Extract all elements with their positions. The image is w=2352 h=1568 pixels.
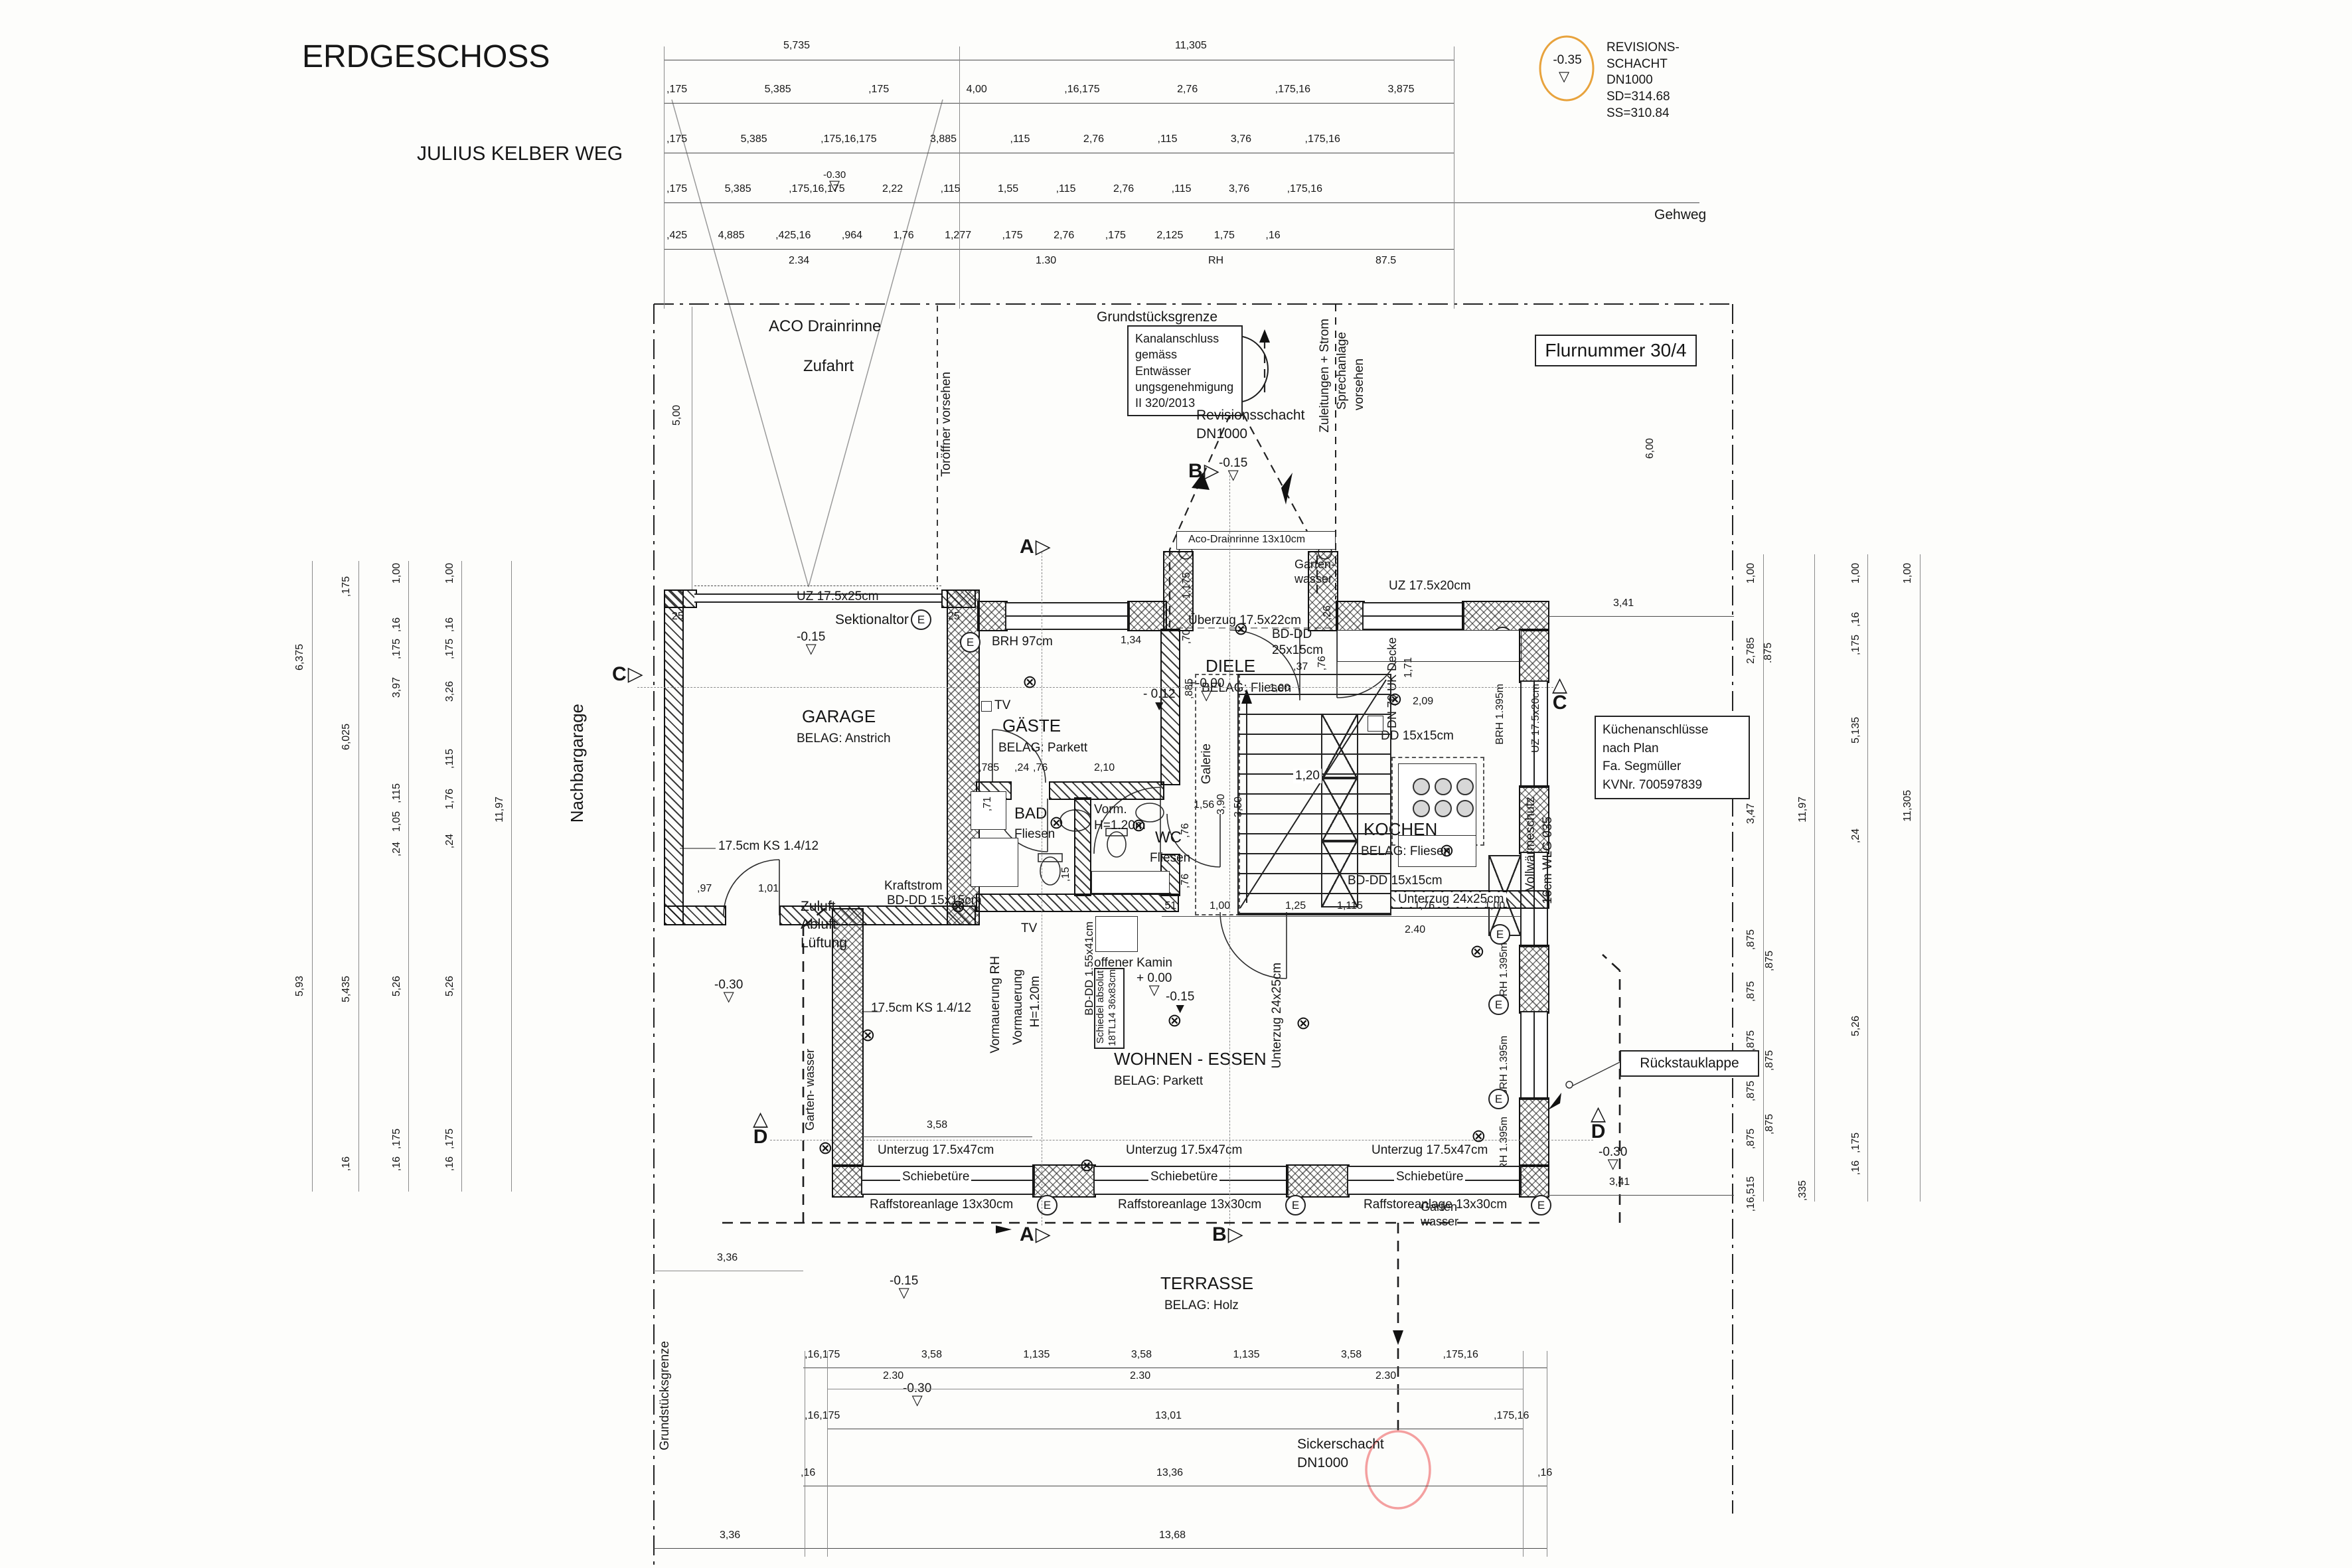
dim-label: 5,135: [1851, 717, 1862, 744]
house-wall-north: [977, 601, 1008, 631]
dim-ext-line: [1523, 1351, 1524, 1557]
room-belag-wohnen: BELAG: Parkett: [1114, 1074, 1203, 1089]
dim-label: ,76: [1317, 656, 1328, 670]
dim-label: 2.34: [789, 255, 809, 267]
dim-row: ,175 5,385 ,175,16,175 3,885 ,115 2,76 ,…: [666, 133, 1340, 145]
lamp-icon: ⊗: [1439, 842, 1454, 860]
dim-label: 1,20: [1293, 769, 1322, 783]
window-east: [1520, 1011, 1548, 1100]
dim-label: ,16,175: [805, 1410, 840, 1422]
dim-line: [654, 1271, 803, 1271]
dim-label: 3,36: [720, 1529, 740, 1541]
dim-label: 2.40: [1405, 924, 1425, 937]
dim-label: 11,97: [495, 797, 506, 823]
section-letter: B: [1212, 1223, 1227, 1246]
dim-line-v: [358, 561, 359, 1192]
e-circle: E: [911, 609, 931, 630]
section-marker-b-bottom: B ▷: [1212, 1223, 1243, 1246]
dim-label: 3,90: [1216, 794, 1227, 815]
vormauerung-rh-label: Vormauerung RH: [989, 956, 1002, 1054]
flurnummer-box: Flurnummer 30/4: [1535, 335, 1697, 366]
dim-label: 3,47: [1746, 803, 1757, 824]
dim-label: 1,76: [1414, 900, 1435, 913]
lamp-icon: ⊗: [1387, 690, 1403, 708]
dim-label: ,16: [392, 617, 403, 632]
lamp-icon: ⊗: [1022, 673, 1038, 691]
dim-label: 11,97: [1798, 797, 1809, 823]
house-wall-east: [1519, 629, 1549, 683]
dim-label: 5,26: [445, 976, 456, 996]
section-letter: C: [612, 663, 627, 686]
dim-line-v: [461, 561, 462, 1192]
vollwaermeschutz-label-1: Vollwärmeschutz: [1524, 797, 1537, 892]
gehweg-label: Gehweg: [1654, 207, 1706, 224]
dim-ext-line: [1547, 1351, 1547, 1557]
dim-label: ,70: [1182, 629, 1193, 644]
dim-ext-line: [805, 1351, 805, 1557]
zuleitungen-label-3: vorsehen: [1353, 358, 1366, 410]
garage-wall-west: [664, 589, 684, 925]
dim-ext-line: [692, 307, 692, 589]
dim-label: 1,00: [1746, 563, 1757, 584]
ks-wall-note: 17.5cm KS 1.4/12: [871, 1001, 971, 1016]
dim-label: 3,41: [1609, 1176, 1630, 1189]
nachbargarage-label: Nachbargarage: [568, 704, 586, 823]
zuleitungen-label-2: Sprechanlage: [1336, 332, 1349, 410]
e-circle: E: [1488, 994, 1509, 1015]
dim-label: ,875: [1764, 1050, 1776, 1071]
section-marker-c-right: △ C: [1552, 676, 1567, 712]
schiedel-label-1: Schiedel absolut: [1095, 971, 1106, 1044]
unterzug-17547-label: Unterzug 17.5x47cm: [878, 1143, 994, 1158]
dim-line: [803, 1368, 1547, 1368]
dim-label: 25: [948, 611, 960, 623]
section-letter: A: [1020, 536, 1034, 558]
wall-badwc-south: [976, 894, 1179, 912]
lamp-icon: ⊗: [818, 1139, 833, 1157]
shower-tray: [971, 838, 1018, 887]
dim-row: ,175 5,385 ,175 4,00 ,16,175 2,76 ,175,1…: [666, 84, 1415, 96]
brh-label: BRH 1.395m: [1495, 684, 1506, 745]
dim-label: 3,97: [392, 677, 403, 698]
section-marker-d-left: △ D: [753, 1110, 768, 1146]
dim-label: 3,41: [1613, 597, 1634, 610]
level-triangle-icon: ▽: [1608, 1157, 1618, 1171]
room-belag-wc: Fliesen: [1150, 851, 1190, 866]
level-marker: -0.15 ▽: [890, 1275, 918, 1300]
dim-label: 6,00: [1645, 438, 1656, 459]
section-letter: C: [1553, 694, 1567, 712]
lamp-icon: ⊗: [860, 1026, 876, 1044]
room-belag-garage: BELAG: Anstrich: [797, 732, 891, 746]
level-marker: -0.15 ▽: [1219, 457, 1247, 482]
raffstore-label: Raffstoreanlage 13x30cm: [870, 1198, 1013, 1212]
dim-label: 1,34: [1121, 635, 1141, 647]
dim-label: 1,175: [1182, 572, 1193, 599]
schiebetuere-label: Schiebetüre: [1148, 1170, 1219, 1184]
kuechenanschluesse-box: Küchenanschlüsse nach Plan Fa. Segmüller…: [1595, 716, 1750, 799]
house-wall-south-pier: [1286, 1164, 1350, 1198]
dim-label: 1,25: [1285, 900, 1306, 913]
level-marker: -0.15 ▽: [797, 631, 825, 656]
revisionsschacht-label: Revisionsschacht DN1000: [1196, 406, 1304, 444]
dim-label: ,175: [392, 639, 403, 659]
e-letter: E: [1537, 1199, 1545, 1212]
room-belag-terrasse: BELAG: Holz: [1164, 1298, 1239, 1313]
section-marker-c-left: C ▷: [612, 663, 643, 686]
dim-label: 11,305: [1903, 790, 1914, 822]
section-marker-a-bottom: A ▷: [1020, 1223, 1051, 1246]
staircase: [1237, 674, 1391, 915]
unterzug-17547-label: Unterzug 17.5x47cm: [1126, 1143, 1242, 1158]
lamp-icon: ⊗: [1131, 817, 1146, 834]
level-triangle-icon: ▽: [829, 179, 840, 193]
dim-line-v: [312, 561, 313, 1192]
dim-line: [664, 60, 1454, 60]
garage-wall-south: [664, 905, 726, 925]
level-triangle-icon: ▽: [912, 1393, 923, 1407]
window-gaeste-north: [1005, 602, 1130, 630]
e-letter: E: [1044, 1199, 1051, 1212]
vormauerung-h-label-1: Vormauerung: [1012, 969, 1025, 1045]
lamp-icon: ⊗: [951, 898, 966, 915]
dim-line-v: [1920, 554, 1921, 1202]
aco-drainrinne-label: ACO Drainrinne: [769, 317, 881, 336]
hob-burners: [1413, 778, 1474, 817]
dim-label: ,175,16: [1494, 1410, 1529, 1422]
dim-label: 5,735: [783, 40, 810, 52]
boundary-label: Grundstücksgrenze: [1097, 309, 1217, 326]
section-triangle-icon: △: [1591, 1105, 1606, 1123]
dim-label: 2,09: [1413, 696, 1433, 708]
dim-label: 11,305: [1175, 40, 1207, 52]
dim-label: ,875: [1746, 1030, 1757, 1051]
e-circle: E: [1037, 1195, 1058, 1215]
e-circle: E: [1531, 1195, 1551, 1215]
dim-label: ,16: [445, 1156, 456, 1171]
dim-row: ,175 5,385 ,175,16,175 2,22 ,115 1,55 ,1…: [666, 183, 1322, 195]
section-marker-a-top: A ▷: [1020, 535, 1051, 558]
wall-gaeste-diele: [1160, 629, 1180, 785]
wall-gaeste-south: [1049, 781, 1164, 800]
house-wall-south-corner: [832, 1164, 864, 1198]
sickerschacht-label: Sickerschacht DN1000: [1297, 1435, 1384, 1473]
e-letter: E: [1292, 1199, 1299, 1212]
revision-note: REVISIONS- SCHACHT DN1000 SD=314.68 SS=3…: [1607, 40, 1680, 121]
section-letter: B: [1188, 460, 1203, 483]
e-letter: E: [917, 613, 925, 627]
section-triangle-icon: ▷: [1204, 459, 1219, 483]
wc-appliance-counter: [1091, 871, 1170, 894]
section-marker-b-top: B ▷: [1188, 459, 1219, 483]
dim-label: ,175: [392, 1129, 403, 1149]
section-triangle-icon: ▷: [628, 663, 643, 686]
dim-label: 1,00: [1210, 900, 1230, 913]
lamp-icon: ⊗: [1233, 620, 1249, 638]
brh-label: BRH 97cm: [992, 635, 1053, 649]
dim-label: 87.5: [1375, 255, 1396, 267]
dim-label: 2,785: [1746, 637, 1757, 664]
uz-label: UZ 17.5x25cm: [797, 589, 879, 604]
dim-line-v: [511, 561, 512, 1192]
lamp-icon: ⊗: [1471, 1127, 1486, 1145]
zufahrt-label: Zufahrt: [803, 357, 854, 376]
kanalanschluss-box: Kanalanschluss gemäss Entwässer ungsgene…: [1127, 325, 1243, 416]
room-label-wc: WC: [1155, 828, 1182, 847]
dim-label: 1.30: [1036, 255, 1056, 267]
e-letter: E: [1496, 928, 1504, 941]
level-triangle-icon: ▽: [724, 990, 734, 1004]
dim-label: 25: [672, 611, 684, 623]
gartenwasser-label: Garten- wasser: [1294, 558, 1335, 586]
schiebetuere-label: Schiebetüre: [900, 1170, 971, 1184]
room-label-wohnen: WOHNEN - ESSEN: [1114, 1049, 1267, 1069]
kamin-body: [1095, 916, 1138, 952]
house-wall-east: [1519, 945, 1549, 1014]
bddd-label: BD-DD 25x15cm: [1272, 627, 1323, 659]
dim-label: .875: [1763, 643, 1774, 663]
lamp-icon: ⊗: [1079, 1156, 1095, 1174]
dim-label: 5,26: [392, 976, 403, 996]
dim-label: ,76: [1033, 762, 1048, 775]
toroeffner-label: Toröffner vorsehen: [940, 372, 953, 477]
dim-label: ,15: [1061, 867, 1072, 882]
unterzug-beam: [1504, 890, 1549, 909]
e-letter: E: [1495, 998, 1502, 1012]
vormauerung-h-label-2: H=1.20m: [1029, 976, 1042, 1028]
level-marker: -0.30 ▽: [1599, 1146, 1627, 1171]
section-line-c: [637, 687, 1553, 688]
room-label-garage: GARAGE: [802, 706, 876, 727]
dim-label: 5,00: [672, 405, 683, 426]
dim-label: ,97: [697, 883, 712, 896]
section-letter: D: [753, 1128, 768, 1146]
dim-label: 13,36: [1156, 1467, 1183, 1479]
zuluft-note: Zuluft Abluft Lüftung: [801, 898, 847, 952]
dim-line: [827, 1389, 1523, 1389]
dim-line-v: [408, 561, 409, 1192]
dim-label: ,16,515: [1746, 1176, 1757, 1212]
dim-label: 1,76: [445, 789, 456, 809]
dim-label: 1,00: [1903, 563, 1914, 584]
dim-label: 6,375: [295, 644, 306, 670]
dim-label: ,16: [1851, 1160, 1862, 1175]
dim-label: ,71: [982, 797, 994, 811]
dim-label: ,16: [801, 1467, 815, 1479]
dim-label: ,51: [1162, 900, 1176, 913]
aco-channel-label: Aco-Drainrinne 13x10cm: [1188, 534, 1305, 546]
dim-label: 1,00: [445, 563, 456, 584]
dim-line: [861, 1137, 1032, 1137]
dim-label: 1,71: [1403, 657, 1415, 678]
dim-label: 6,025: [341, 724, 353, 750]
dim-label: ,875: [1746, 1081, 1757, 1101]
e-circle: E: [1285, 1195, 1306, 1215]
window-kitchen-north: [1362, 602, 1464, 630]
dim-label: ,24: [1014, 762, 1029, 775]
uz-label: UZ 17.5x20cm: [1389, 579, 1471, 593]
dim-label: 5,93: [295, 976, 306, 996]
e-letter: E: [967, 636, 974, 649]
schiebetuere-label: Schiebetüre: [1394, 1170, 1465, 1184]
level-triangle-icon: ▽: [806, 642, 817, 656]
dim-label: ,875: [1764, 951, 1776, 971]
dim-label: 1,115: [1337, 900, 1363, 913]
dim-label: 13,68: [1159, 1529, 1186, 1541]
tv-label: TV: [1021, 921, 1037, 936]
dim-label: ,24: [1851, 828, 1862, 843]
dim-label: ,16: [445, 617, 456, 632]
dim-line-v: [1814, 554, 1815, 1202]
house-wall-north: [1127, 601, 1167, 631]
uz-beam-dashed-line: [694, 586, 941, 586]
dim-label: ,16: [392, 1156, 403, 1171]
unterzug-label-vertical: Unterzug 24x25cm: [1271, 963, 1284, 1068]
gartenwasser-label-south: Garten- wasser: [1421, 1200, 1461, 1229]
zuleitungen-label-1: Zuleitungen + Strom: [1318, 319, 1332, 433]
ks-wall-note: 17.5cm KS 1.4/12: [718, 839, 819, 854]
house-wall-east: [1519, 1097, 1549, 1167]
section-line-d: [770, 1140, 1593, 1140]
section-triangle-icon: ▷: [1228, 1223, 1243, 1246]
dim-label: 1,01: [758, 883, 779, 896]
dim-line-v: [1867, 554, 1868, 1202]
room-belag-gaeste: BELAG: Parkett: [998, 741, 1087, 755]
dim-label: ,335: [1798, 1180, 1809, 1201]
kitchen-counter: [1337, 630, 1522, 662]
section-triangle-icon: ▷: [1036, 535, 1051, 558]
dim-label: ,76: [1180, 823, 1192, 838]
dim-label: ,875: [1746, 929, 1757, 950]
dim-label: ,16: [1537, 1467, 1552, 1479]
section-letter: D: [1591, 1123, 1606, 1140]
dim-label: 5,26: [1851, 1016, 1862, 1036]
dim-line: [664, 202, 1699, 203]
dim-label: ,175: [1851, 635, 1862, 655]
lamp-icon: ⊗: [1049, 814, 1064, 832]
dim-line: [664, 249, 1454, 250]
dim-label: 1,00: [1851, 563, 1862, 584]
dim-line: [654, 1548, 1547, 1549]
dim-ext-line: [827, 1351, 828, 1557]
dim-label: 3,58: [927, 1119, 947, 1132]
dim-row: ,16,175 3,58 1,135 3,58 1,135 3,58 ,175,…: [805, 1349, 1478, 1361]
section-line-b: [1229, 475, 1230, 1225]
section-triangle-icon: △: [1552, 676, 1567, 694]
street-label: JULIUS KELBER WEG: [417, 142, 623, 165]
dim-label: ,16: [1851, 612, 1862, 627]
raffstore-label: Raffstoreanlage 13x30cm: [1118, 1198, 1261, 1212]
section-triangle-icon: △: [753, 1110, 768, 1128]
level-triangle-icon: ▽: [1559, 69, 1569, 86]
dim-label: 1,05: [392, 811, 403, 832]
e-circle: E: [1488, 1089, 1509, 1109]
e-circle: E: [960, 632, 980, 653]
dim-label: ,37: [1293, 661, 1308, 674]
dim-label: 2.30: [883, 1370, 903, 1382]
tv-outlet: [981, 701, 992, 712]
room-label-gaeste: GÄSTE: [1002, 716, 1061, 736]
room-label-terrasse: TERRASSE: [1160, 1273, 1253, 1294]
level-triangle-icon: ▽: [899, 1286, 909, 1300]
dim-label: 5,435: [341, 976, 353, 1002]
dim-ext-line: [664, 46, 665, 309]
floorplan-sheet: ERDGESCHOSS JULIUS KELBER WEG 5,735 11,3…: [0, 0, 2352, 1568]
kraftstrom-label: Kraftstrom: [884, 879, 943, 894]
dim-label: ,26: [1322, 605, 1334, 620]
galerie-label: Galerie: [1200, 744, 1214, 784]
level-marker: -0.30 ▽: [714, 979, 743, 1004]
dim-label: ,785: [979, 762, 999, 775]
dim-line: [803, 1486, 1547, 1486]
dim-label: RH: [1208, 255, 1223, 267]
dim-label: ,175: [341, 576, 353, 597]
dim-label: ,175: [1851, 1133, 1862, 1153]
garage-wall-north-stub: [664, 589, 697, 608]
dim-label: 2,10: [1094, 762, 1115, 775]
dim-label: ,115: [392, 783, 403, 803]
lamp-icon: ⊗: [1296, 1014, 1311, 1032]
dim-row: ,425 4,885 ,425,16 ,964 1,76 1,277 ,175 …: [666, 230, 1281, 242]
gartenwasser-label-west: Garten- wasser: [803, 1049, 818, 1131]
house-wall-south-corner: [1519, 1164, 1549, 1198]
section-line-a: [1042, 552, 1042, 1225]
dim-label: ,875: [1746, 1129, 1757, 1149]
dim-label: 1,00: [392, 563, 403, 584]
section-triangle-icon: ▷: [1036, 1223, 1051, 1246]
dim-ext-line: [1454, 46, 1454, 309]
level-marker: -0.30 ▽: [903, 1382, 931, 1407]
dd-label: DD 15x15cm: [1381, 729, 1454, 744]
e-letter: E: [1495, 1093, 1502, 1106]
dim-label: ,175: [445, 639, 456, 659]
dim-label: 13,01: [1155, 1410, 1182, 1422]
schiedel-label-2: 18TL14 36x83cm: [1107, 969, 1118, 1046]
dim-line: [827, 1429, 1523, 1429]
section-marker-d-right: △ D: [1591, 1105, 1606, 1140]
dim-line: [1547, 1195, 1734, 1196]
lamp-icon: ⊗: [1167, 1012, 1182, 1030]
dim-label: 3,36: [717, 1252, 738, 1264]
dim-label: 1,00: [1484, 900, 1505, 913]
dim-label: 2.30: [1375, 1370, 1396, 1382]
dim-label: ,175: [445, 1129, 456, 1149]
wall-bad-wc: [1074, 797, 1091, 896]
brh-label: BRH 1.395m: [1499, 1036, 1510, 1097]
e-circle: E: [1490, 924, 1510, 945]
dim-line: [664, 103, 1454, 104]
rueckstauklappe-box: Rückstauklappe: [1620, 1050, 1759, 1077]
dim-label: ,16: [341, 1156, 353, 1171]
sektionaltor-label: Sektionaltor: [835, 612, 909, 629]
dim-label: ,76: [1180, 874, 1192, 888]
page-title: ERDGESCHOSS: [302, 39, 550, 76]
dim-label: ,24: [445, 834, 456, 848]
revision-level: -0.35: [1549, 53, 1585, 68]
dim-label: ,115: [445, 749, 456, 769]
bddd-label: BD-DD 15x15cm: [887, 894, 982, 908]
dim-line: [1547, 616, 1734, 617]
dim-label: 3,26: [445, 681, 456, 702]
boundary-label-vertical: Grundstücksgrenze: [659, 1341, 672, 1450]
dim-label: 2.30: [1130, 1370, 1150, 1382]
lamp-icon: ⊗: [1470, 943, 1485, 961]
house-wall-north-kitchen: [1336, 601, 1365, 631]
dim-label: ,24: [392, 842, 403, 856]
level-triangle-icon: ▽: [1149, 983, 1160, 997]
dim-label: ,875: [1746, 981, 1757, 1002]
dim-label: 3,50: [1233, 797, 1245, 817]
